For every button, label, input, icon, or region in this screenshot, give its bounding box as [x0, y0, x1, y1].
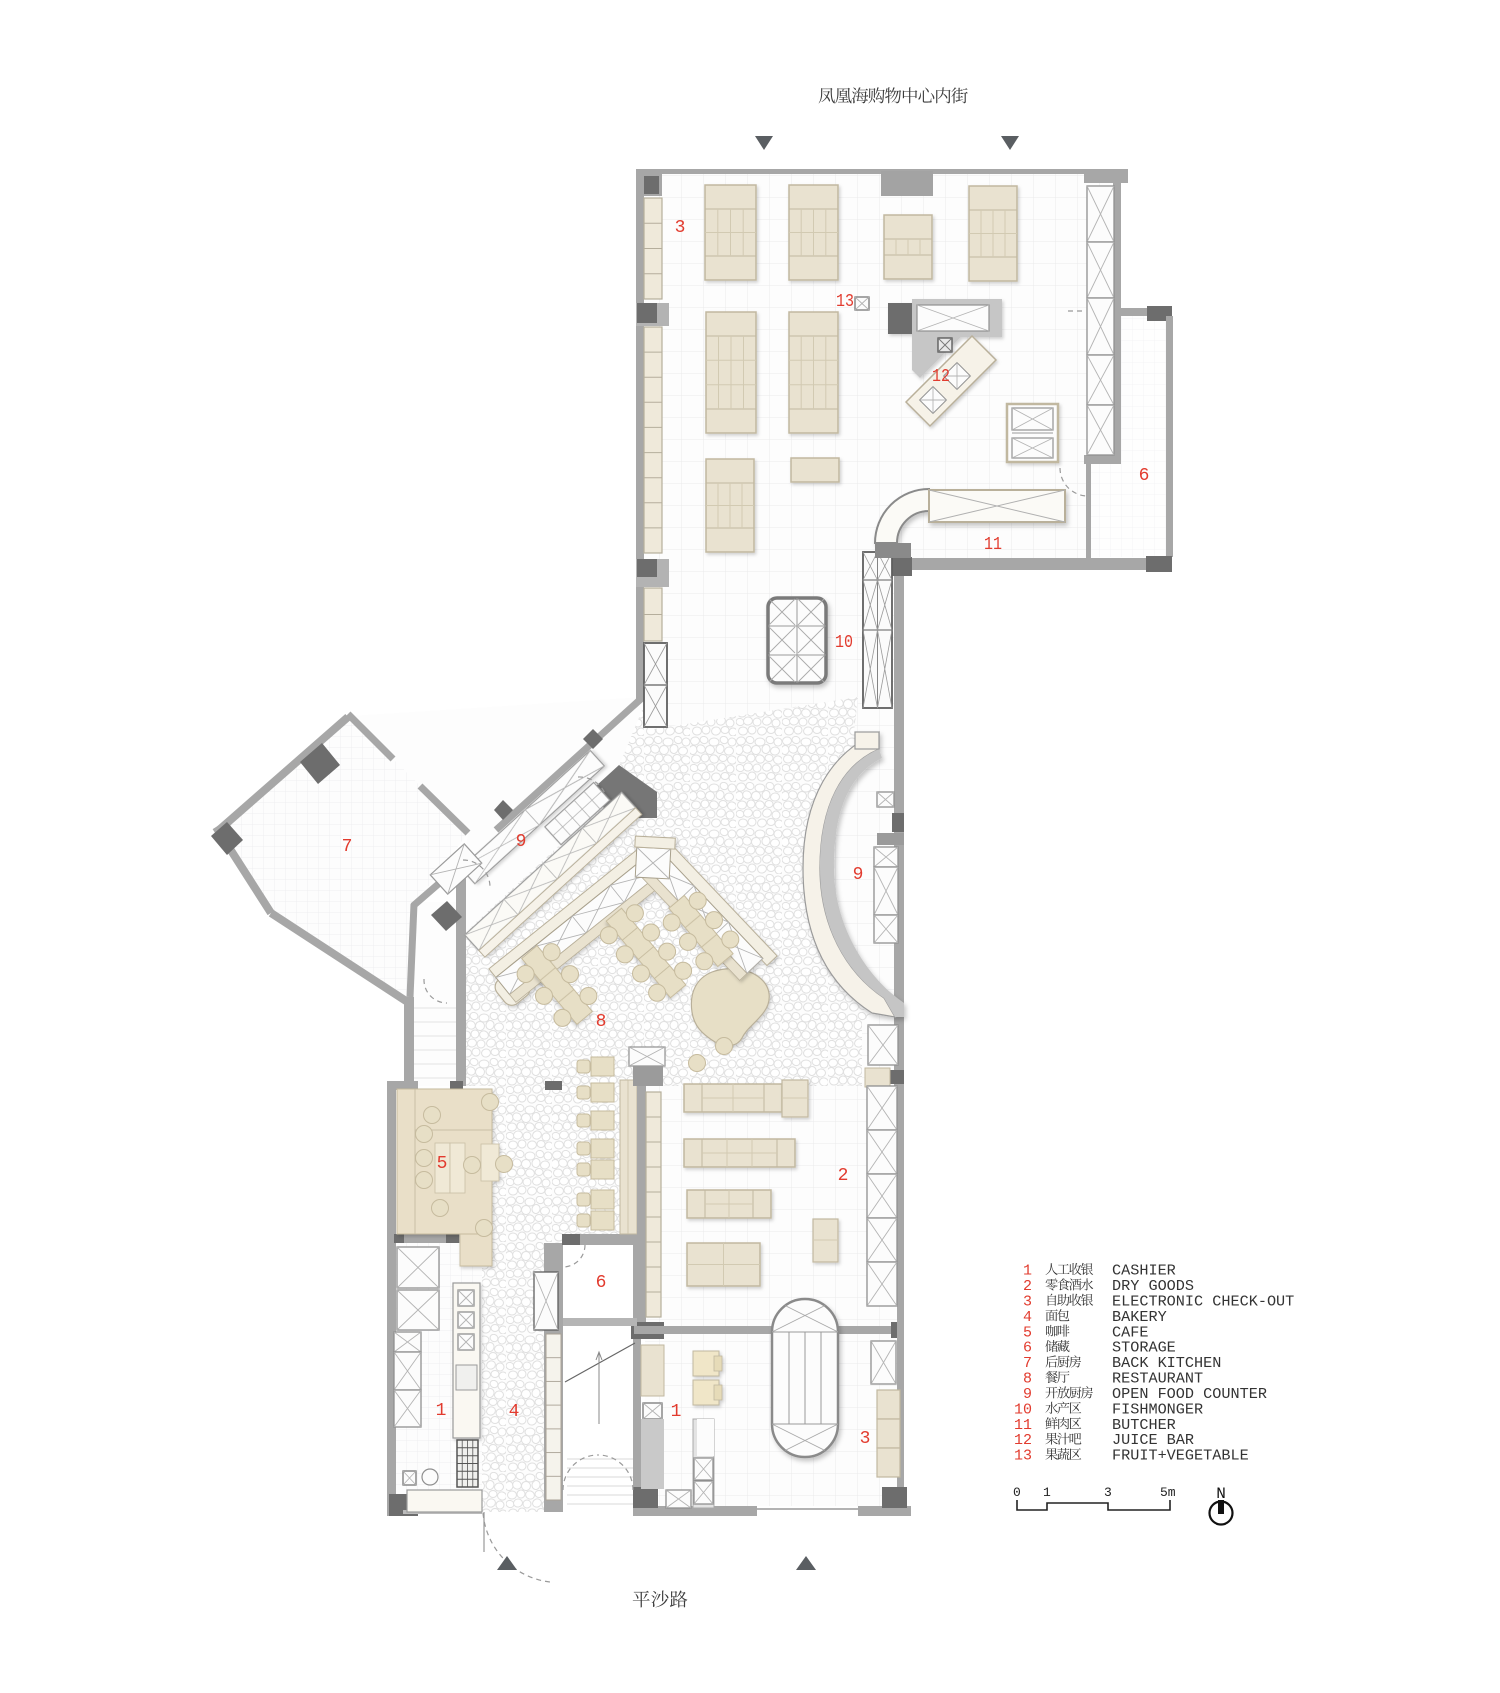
svg-text:12: 12 — [932, 367, 950, 387]
svg-text:10: 10 — [835, 633, 853, 653]
svg-text:3: 3 — [1023, 1293, 1032, 1310]
svg-text:FRUIT+VEGETABLE: FRUIT+VEGETABLE — [1112, 1447, 1249, 1465]
svg-text:5: 5 — [437, 1154, 448, 1174]
svg-text:6: 6 — [1139, 466, 1150, 486]
svg-text:8: 8 — [596, 1012, 607, 1032]
svg-text:0: 0 — [1013, 1485, 1021, 1500]
svg-text:2: 2 — [838, 1166, 849, 1186]
svg-text:N: N — [1216, 1485, 1226, 1503]
svg-text:7: 7 — [342, 837, 353, 857]
svg-text:3: 3 — [860, 1429, 871, 1449]
svg-text:1: 1 — [1043, 1485, 1051, 1500]
svg-text:9: 9 — [853, 865, 864, 885]
svg-text:1: 1 — [436, 1401, 447, 1421]
svg-text:3: 3 — [675, 218, 686, 238]
svg-text:13: 13 — [1014, 1448, 1032, 1465]
svg-text:9: 9 — [516, 832, 527, 852]
svg-text:4: 4 — [509, 1402, 520, 1422]
svg-text:8: 8 — [1023, 1371, 1032, 1388]
svg-text:1: 1 — [671, 1402, 682, 1422]
svg-text:5m: 5m — [1160, 1485, 1176, 1500]
svg-text:11: 11 — [984, 535, 1002, 555]
svg-text:3: 3 — [1104, 1485, 1112, 1500]
svg-text:13: 13 — [836, 292, 854, 312]
svg-text:6: 6 — [596, 1273, 607, 1293]
